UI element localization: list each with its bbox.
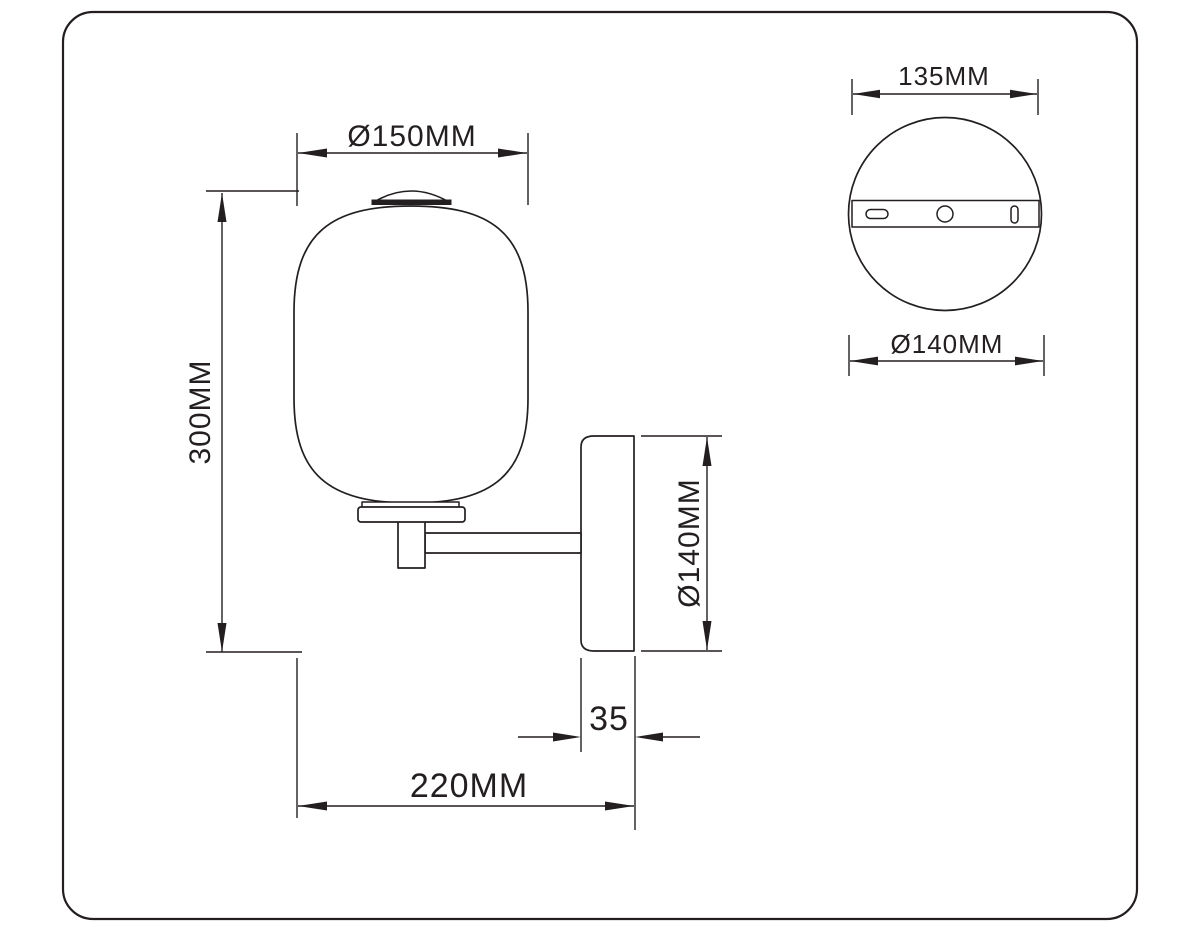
mounting-arm (425, 533, 581, 553)
dim-label-bracket-width: 135MM (898, 61, 990, 91)
dim-label-backplate-depth: 35 (589, 700, 629, 738)
lamp-stem (398, 521, 425, 568)
dim-label-shade-diameter: Ø150MM (347, 120, 476, 153)
dim-label-backplate-diameter: Ø140MM (891, 329, 1004, 359)
dim-label-projection: 220MM (410, 767, 528, 805)
cable-hole (937, 206, 953, 222)
mounting-slot-left (866, 210, 888, 219)
dim-label-total-height: 300MM (184, 359, 217, 464)
glass-shade (294, 206, 528, 503)
mounting-slot-right (1011, 206, 1018, 223)
shade-collar (358, 507, 465, 522)
dim-label-backplate-height: Ø140MM (673, 478, 706, 607)
wall-plate (581, 436, 634, 651)
backplate-rear-view (849, 118, 1042, 311)
drawing-canvas: Ø150MM 300MM Ø140MM 35 (0, 0, 1200, 933)
shade-cap-rim (372, 200, 451, 205)
